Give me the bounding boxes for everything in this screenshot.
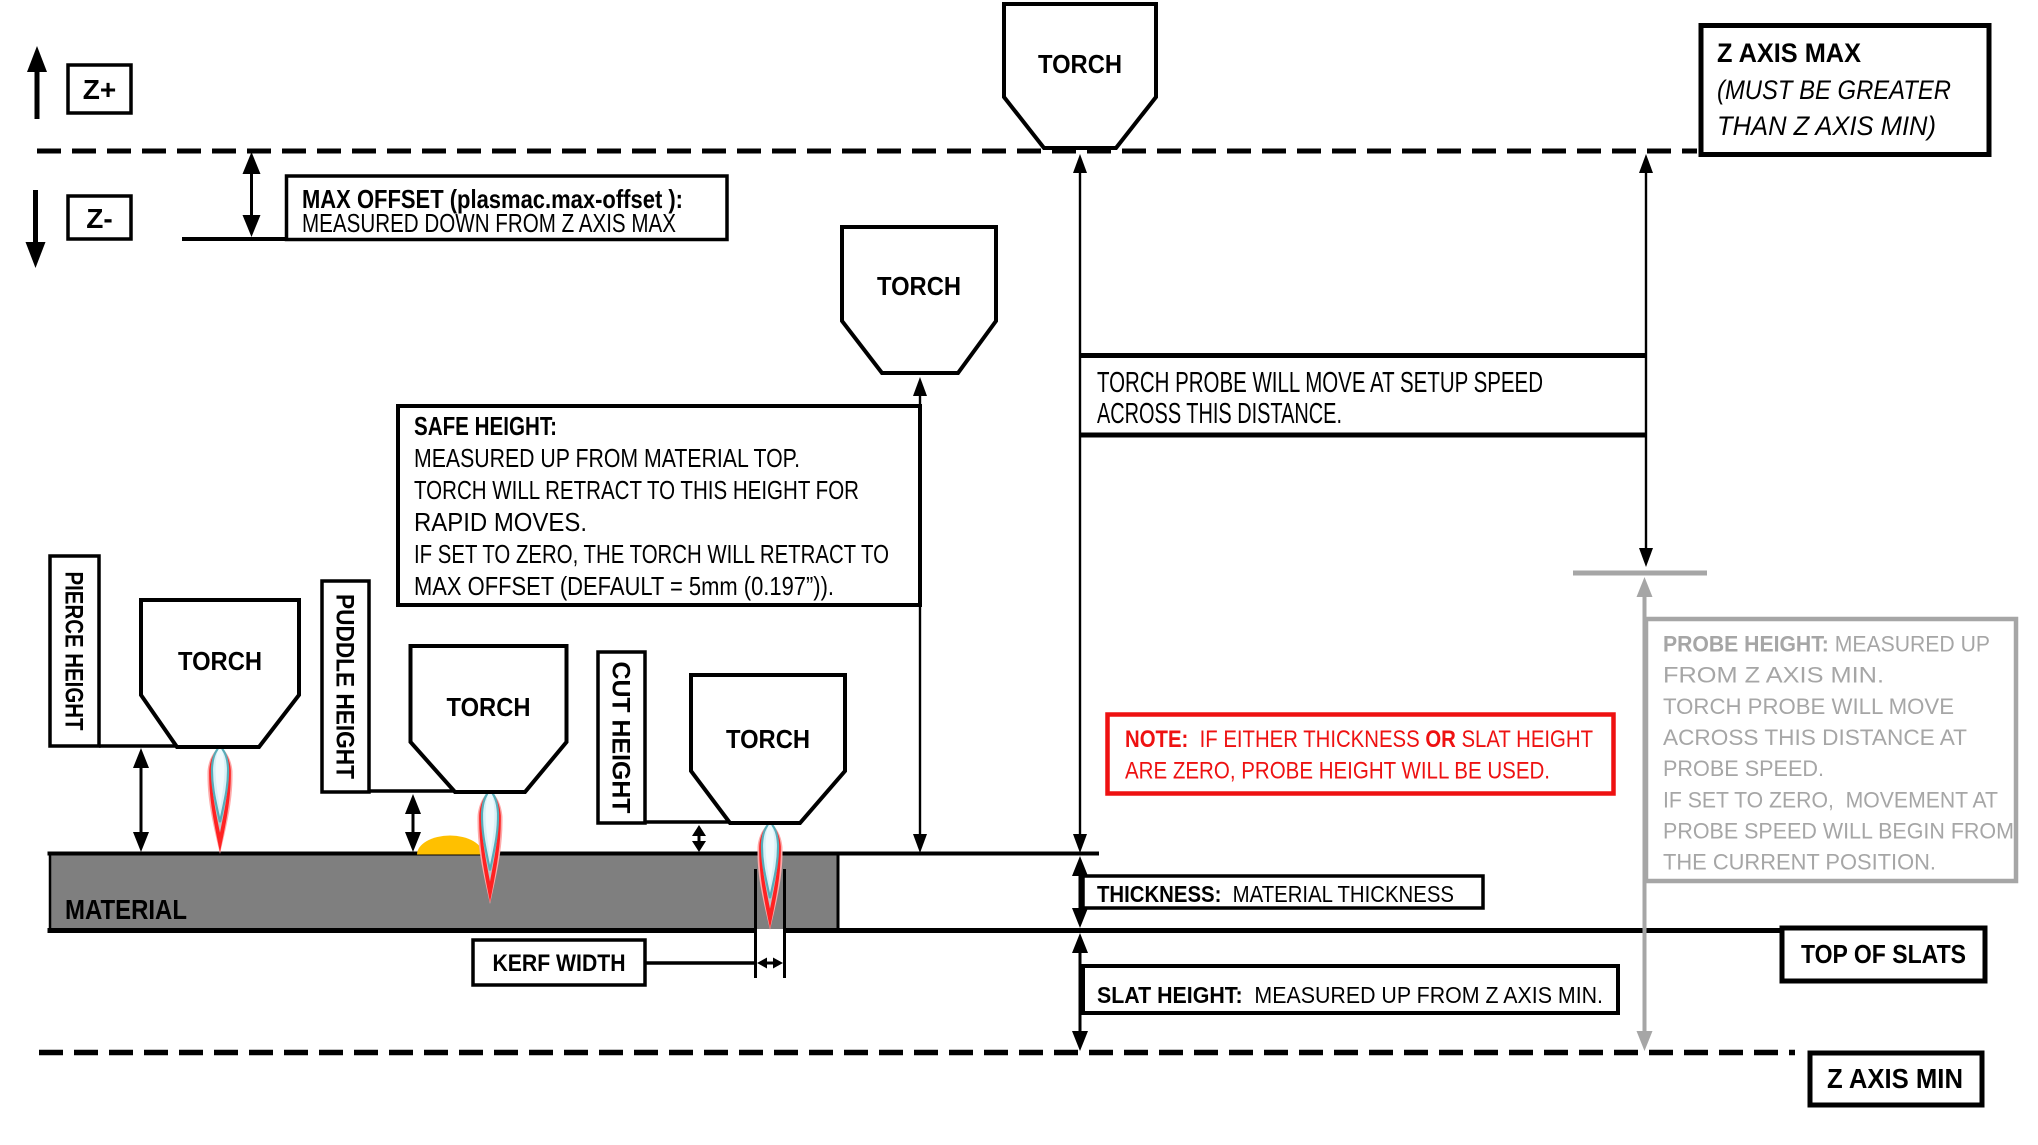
svg-text:TORCH: TORCH: [447, 692, 531, 722]
svg-text:TORCH: TORCH: [178, 646, 262, 676]
svg-text:PROBE HEIGHT: MEASURED UP: PROBE HEIGHT: MEASURED UP: [1663, 631, 1990, 656]
svg-text:TOP OF SLATS: TOP OF SLATS: [1801, 939, 1966, 969]
svg-text:TORCH WILL RETRACT TO THIS HEI: TORCH WILL RETRACT TO THIS HEIGHT FOR: [414, 475, 859, 505]
svg-text:SAFE HEIGHT:: SAFE HEIGHT:: [414, 411, 557, 441]
svg-text:PUDDLE HEIGHT: PUDDLE HEIGHT: [331, 594, 359, 779]
svg-text:Z-: Z-: [86, 203, 112, 234]
svg-text:THAN Z AXIS MIN): THAN Z AXIS MIN): [1717, 111, 1936, 141]
svg-text:KERF WIDTH: KERF WIDTH: [493, 950, 626, 977]
svg-text:Z AXIS MIN: Z AXIS MIN: [1827, 1063, 1963, 1094]
svg-text:Z AXIS MAX: Z AXIS MAX: [1717, 38, 1861, 68]
svg-text:PIERCE HEIGHT: PIERCE HEIGHT: [60, 572, 88, 731]
svg-text:MEASURED DOWN FROM Z AXIS MAX: MEASURED DOWN FROM Z AXIS MAX: [302, 208, 676, 238]
svg-text:SLAT HEIGHT: MEASURED UP FROM: SLAT HEIGHT: MEASURED UP FROM Z AXIS MIN…: [1097, 982, 1603, 1008]
svg-text:TORCH PROBE WILL MOVE: TORCH PROBE WILL MOVE: [1663, 694, 1954, 719]
svg-text:RAPID MOVES.: RAPID MOVES.: [414, 507, 587, 537]
svg-text:TORCH: TORCH: [877, 271, 961, 301]
svg-text:PROBE SPEED WILL BEGIN FROM: PROBE SPEED WILL BEGIN FROM: [1663, 819, 2014, 844]
svg-text:IF SET TO ZERO, THE TORCH WILL: IF SET TO ZERO, THE TORCH WILL RETRACT T…: [414, 539, 889, 569]
svg-text:(MUST BE GREATER: (MUST BE GREATER: [1717, 75, 1951, 105]
svg-text:NOTE: IF EITHER THICKNESS OR: NOTE: IF EITHER THICKNESS OR SLAT HEIGHT: [1125, 726, 1593, 753]
svg-text:FROM Z AXIS MIN.: FROM Z AXIS MIN.: [1663, 663, 1884, 688]
svg-text:MAX OFFSET (DEFAULT = 5mm (0.1: MAX OFFSET (DEFAULT = 5mm (0.197”)).: [414, 571, 834, 601]
svg-text:PROBE SPEED.: PROBE SPEED.: [1663, 756, 1824, 781]
svg-text:MEASURED UP FROM MATERIAL TOP.: MEASURED UP FROM MATERIAL TOP.: [414, 443, 800, 473]
svg-text:ACROSS THIS DISTANCE AT: ACROSS THIS DISTANCE AT: [1663, 725, 1967, 750]
svg-text:TORCH: TORCH: [726, 724, 810, 754]
svg-text:THE CURRENT POSITION.: THE CURRENT POSITION.: [1663, 850, 1936, 875]
svg-text:IF SET TO ZERO, MOVEMENT AT: IF SET TO ZERO, MOVEMENT AT: [1663, 787, 1998, 812]
svg-text:ACROSS THIS DISTANCE.: ACROSS THIS DISTANCE.: [1097, 398, 1342, 430]
svg-text:ARE ZERO, PROBE HEIGHT WILL BE: ARE ZERO, PROBE HEIGHT WILL BE USED.: [1125, 758, 1550, 785]
svg-text:MATERIAL: MATERIAL: [65, 894, 187, 925]
svg-text:TORCH: TORCH: [1038, 49, 1122, 79]
svg-text:THICKNESS: MATERIAL THICKNESS: THICKNESS: MATERIAL THICKNESS: [1097, 881, 1454, 907]
svg-text:CUT HEIGHT: CUT HEIGHT: [607, 662, 635, 814]
svg-text:TORCH PROBE WILL MOVE AT SETUP: TORCH PROBE WILL MOVE AT SETUP SPEED: [1097, 367, 1543, 399]
svg-text:Z+: Z+: [83, 74, 116, 105]
